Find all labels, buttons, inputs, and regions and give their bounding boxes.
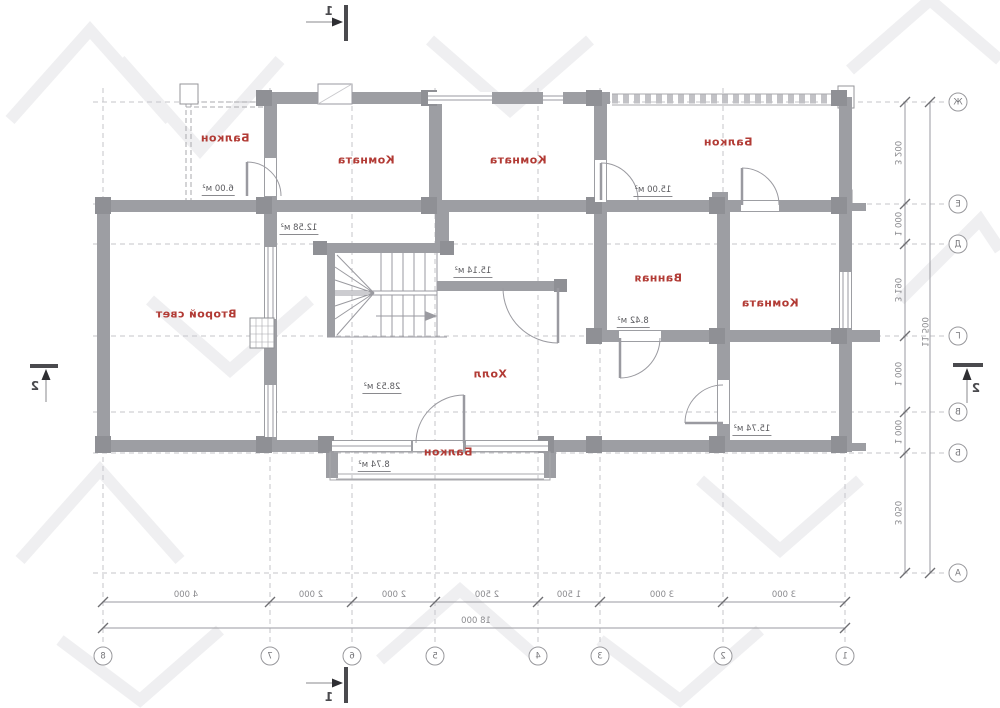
axis-bubble-6: 6 — [343, 647, 362, 666]
axis-bubble-v: В — [949, 403, 968, 422]
room-area-balcony-top-left: 6.00 м² — [201, 184, 234, 196]
room-label-room-3: Комната — [741, 297, 798, 310]
flue-box — [250, 318, 274, 348]
floor-plan-canvas: Балкон Комната Комната Балкон Ванная Ком… — [0, 0, 1000, 708]
floorplan-drawing — [0, 0, 1000, 708]
dim-bottom-5: 3 000 — [650, 590, 674, 600]
axis-bubble-4: 4 — [529, 647, 548, 666]
room-area-bathroom: 8.42 м² — [616, 316, 649, 328]
dim-bottom-0: 4 000 — [174, 590, 198, 600]
axis-bubble-8: 8 — [94, 647, 113, 666]
dim-bottom-total: 18 000 — [461, 616, 491, 626]
room-label-bathroom: Ванная — [634, 272, 682, 285]
axis-bubble-a: А — [949, 564, 968, 583]
dim-bottom-2: 2 000 — [382, 590, 406, 600]
section-label-top: 1 — [325, 4, 333, 18]
room-label-balcony-top-left: Балкон — [201, 132, 250, 145]
section-label-right: 2 — [972, 381, 980, 395]
axis-bubble-d: Д — [949, 235, 968, 254]
dim-right-3: 1 000 — [892, 362, 902, 386]
dim-right-4: 1 000 — [892, 420, 902, 444]
section-label-bottom: 1 — [325, 690, 333, 704]
wall-openings — [265, 84, 851, 451]
dim-bottom-3: 2 500 — [475, 590, 499, 600]
dim-bottom-6: 3 000 — [772, 590, 796, 600]
room-area-balcony-bottom: 8.74 м² — [357, 460, 390, 472]
dim-bottom-1: 2 000 — [299, 590, 323, 600]
axis-bubble-zh: Ж — [949, 93, 968, 112]
dim-right-2: 3 190 — [892, 278, 902, 302]
axis-bubble-1: 1 — [836, 647, 855, 666]
room-label-second-light: Второй свет — [155, 308, 236, 321]
room-label-room-2: Комната — [489, 154, 546, 167]
axis-bubble-e: Е — [949, 195, 968, 214]
room-area-room-1: 12.58 м² — [280, 223, 319, 235]
axis-bubble-5: 5 — [426, 647, 445, 666]
dim-right-total: 11 500 — [919, 317, 929, 347]
axis-bubble-b: Б — [949, 444, 968, 463]
room-label-balcony-bottom: Балкон — [424, 446, 473, 459]
dim-right-1: 1 000 — [892, 212, 902, 236]
stairs — [327, 253, 447, 337]
room-label-hall: Холл — [473, 368, 507, 381]
room-area-room-3: 15.74 м² — [733, 424, 772, 436]
room-area-balcony-top-right: 15.00 м² — [634, 185, 673, 197]
dim-right-5: 3 050 — [892, 501, 902, 525]
room-label-room-1: Комната — [337, 154, 394, 167]
room-area-hall: 28.53 м² — [363, 382, 402, 394]
section-label-left: 2 — [31, 379, 39, 393]
axis-bubble-2: 2 — [714, 647, 733, 666]
axis-bubble-7: 7 — [261, 647, 280, 666]
dim-right-0: 3 200 — [892, 141, 902, 165]
dim-bottom-4: 1 500 — [557, 590, 581, 600]
walls — [97, 92, 880, 478]
axis-bubble-g: Г — [949, 327, 968, 346]
axis-bubble-3: 3 — [591, 647, 610, 666]
room-area-room-2: 15.14 м² — [454, 266, 493, 278]
room-label-balcony-top-right: Балкон — [704, 136, 753, 149]
